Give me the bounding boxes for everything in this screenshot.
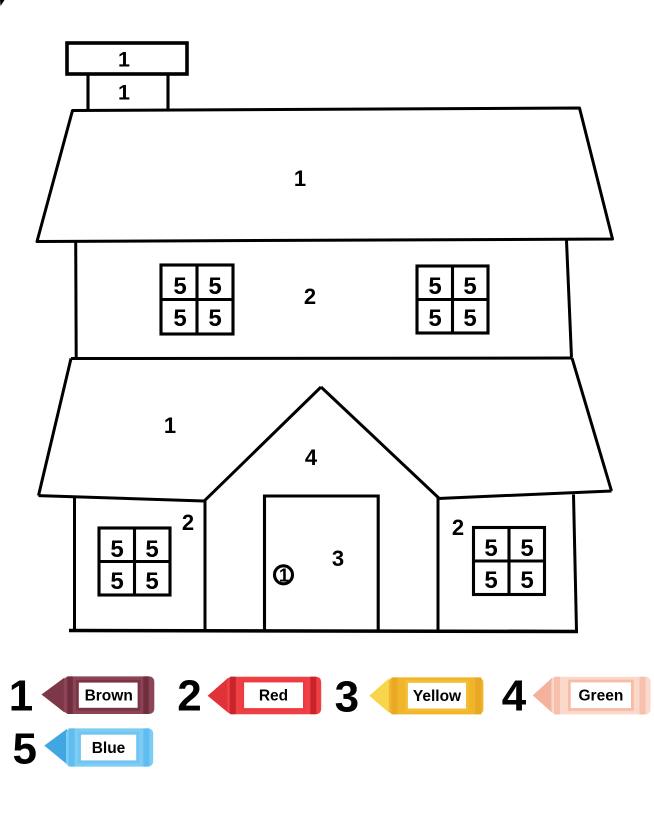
svg-text:5: 5 (520, 567, 533, 594)
svg-text:5: 5 (208, 305, 221, 332)
svg-text:3: 3 (335, 673, 359, 722)
svg-text:5: 5 (173, 305, 186, 332)
svg-text:Yellow: Yellow (413, 688, 462, 705)
svg-text:5: 5 (520, 535, 533, 562)
svg-text:5: 5 (208, 273, 221, 300)
svg-text:1: 1 (164, 413, 176, 438)
svg-text:1: 1 (279, 565, 289, 586)
svg-text:Brown: Brown (85, 688, 133, 705)
svg-text:5: 5 (173, 273, 186, 300)
svg-text:5: 5 (145, 536, 158, 563)
svg-text:5: 5 (145, 568, 158, 595)
svg-text:5: 5 (110, 568, 123, 595)
svg-text:Green: Green (578, 688, 623, 705)
svg-text:5: 5 (428, 305, 441, 332)
svg-text:5: 5 (13, 725, 37, 774)
svg-text:2: 2 (304, 284, 316, 309)
svg-text:5: 5 (110, 536, 123, 563)
svg-text:1: 1 (294, 166, 306, 191)
svg-text:Red: Red (259, 688, 288, 705)
svg-text:Blue: Blue (92, 740, 126, 757)
svg-text:5: 5 (428, 273, 441, 300)
svg-text:5: 5 (484, 535, 497, 562)
svg-text:4: 4 (502, 672, 527, 721)
svg-text:2: 2 (177, 672, 201, 721)
svg-text:5: 5 (484, 567, 497, 594)
svg-text:5: 5 (463, 273, 476, 300)
svg-text:1: 1 (118, 81, 130, 105)
svg-text:1: 1 (118, 48, 130, 72)
svg-text:1: 1 (9, 672, 33, 721)
svg-text:2: 2 (182, 510, 194, 535)
svg-text:2: 2 (452, 515, 464, 540)
svg-text:5: 5 (463, 305, 476, 332)
svg-text:4: 4 (305, 445, 318, 470)
svg-text:3: 3 (332, 546, 344, 571)
